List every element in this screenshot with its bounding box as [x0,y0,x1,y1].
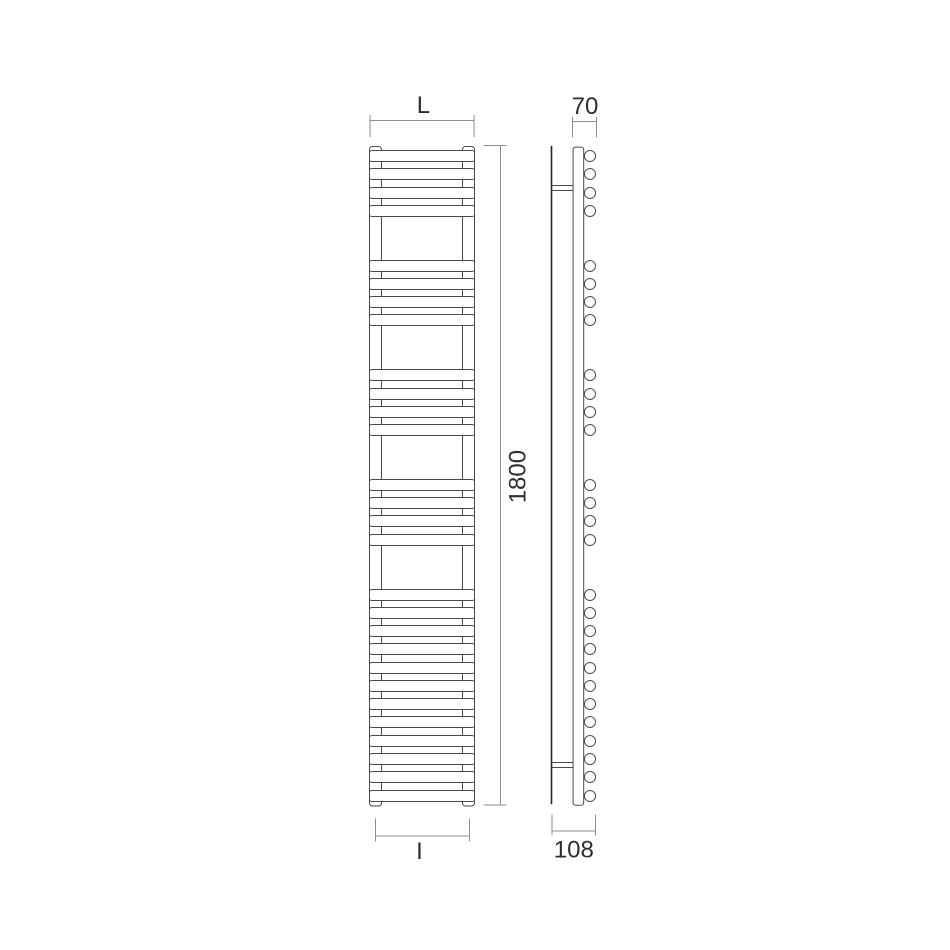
svg-text:1800: 1800 [505,450,532,503]
svg-text:108: 108 [554,836,594,863]
svg-text:I: I [416,838,423,865]
svg-text:70: 70 [572,93,599,120]
svg-text:L: L [417,92,430,119]
